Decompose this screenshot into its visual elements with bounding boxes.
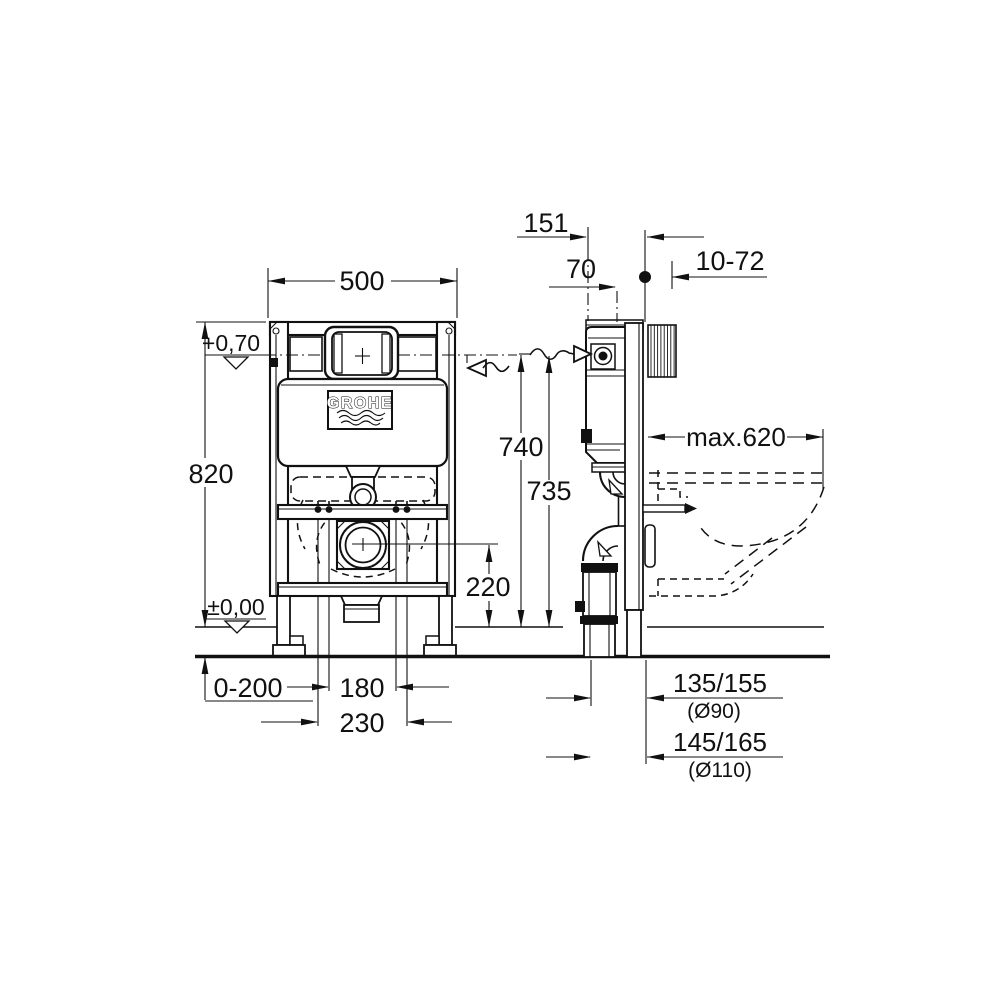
datum-upper-label: +0,70 — [202, 330, 260, 356]
dim-inlet-height: 735 — [524, 356, 575, 627]
dim-label-180: 180 — [339, 673, 384, 703]
grohe-logo: GROHE — [327, 391, 393, 429]
dim-label-floor-adjust: 0-200 — [213, 673, 282, 703]
bowl-fixing-stud — [643, 503, 697, 514]
dim-frame-depth: 151 — [517, 208, 704, 322]
dim-label-dia90: (Ø90) — [687, 700, 741, 723]
side-view — [575, 320, 824, 657]
support-rail — [278, 505, 447, 519]
dim-label-735: 735 — [526, 476, 571, 506]
dim-frame-width: 500 — [268, 266, 457, 318]
bowl-bracket — [645, 525, 655, 567]
dim-label-230: 230 — [339, 708, 384, 738]
dim-frame-height: 820 — [184, 322, 266, 627]
dim-bolt-spacing-230: 230 — [261, 708, 452, 738]
drawing-canvas: GROHE — [0, 0, 1000, 1000]
datum-floor-label: ±0,00 — [207, 594, 264, 620]
outlet-bend-front — [341, 596, 382, 622]
waste-outlet-front — [337, 521, 498, 569]
dim-wall-anchor-range: 10-72 — [672, 246, 767, 289]
wall-face-reference-dot — [639, 271, 651, 283]
water-inlet-symbol-front — [467, 355, 509, 376]
flush-plate — [325, 327, 398, 379]
lower-rail — [278, 583, 447, 596]
dim-label-dia110: (Ø110) — [688, 759, 752, 782]
front-view: GROHE — [269, 322, 498, 726]
dim-label-740: 740 — [498, 432, 543, 462]
technical-drawing: GROHE — [0, 0, 1000, 1000]
dim-drain-110: 145/165 (Ø110) — [546, 727, 783, 782]
cistern-front: GROHE — [278, 379, 447, 466]
brand-logo-text: GROHE — [327, 395, 393, 412]
dim-outlet-height: 220 — [464, 545, 513, 627]
dim-label-145-165: 145/165 — [673, 727, 767, 757]
pipework-side — [575, 463, 628, 657]
flush-pipe-front — [346, 466, 380, 510]
dim-label-135-155: 135/155 — [673, 668, 767, 698]
wall-anchor-rod — [648, 325, 676, 377]
inlet-valve — [591, 344, 615, 369]
dim-label-frame-height: 820 — [188, 459, 233, 489]
toilet-bowl-outline — [649, 470, 824, 596]
dim-cistern-offset: 70 — [549, 254, 617, 322]
dim-label-220: 220 — [465, 572, 510, 602]
dim-label-151: 151 — [523, 208, 568, 238]
water-inlet-symbol-side — [519, 346, 591, 362]
fixing-marker — [269, 358, 278, 367]
dim-label-10-72: 10-72 — [695, 246, 764, 276]
frame-upright-side — [625, 323, 643, 657]
dim-bowl-max-depth: max.620 — [648, 422, 823, 489]
dim-bolt-spacing-180: 180 — [287, 673, 449, 703]
dim-label-frame-width: 500 — [339, 266, 384, 296]
dim-floor-adjust: 0-200 — [202, 657, 313, 703]
datum-symbol-upper — [224, 357, 248, 369]
dim-label-70: 70 — [566, 254, 596, 284]
dim-label-max620: max.620 — [686, 422, 786, 452]
